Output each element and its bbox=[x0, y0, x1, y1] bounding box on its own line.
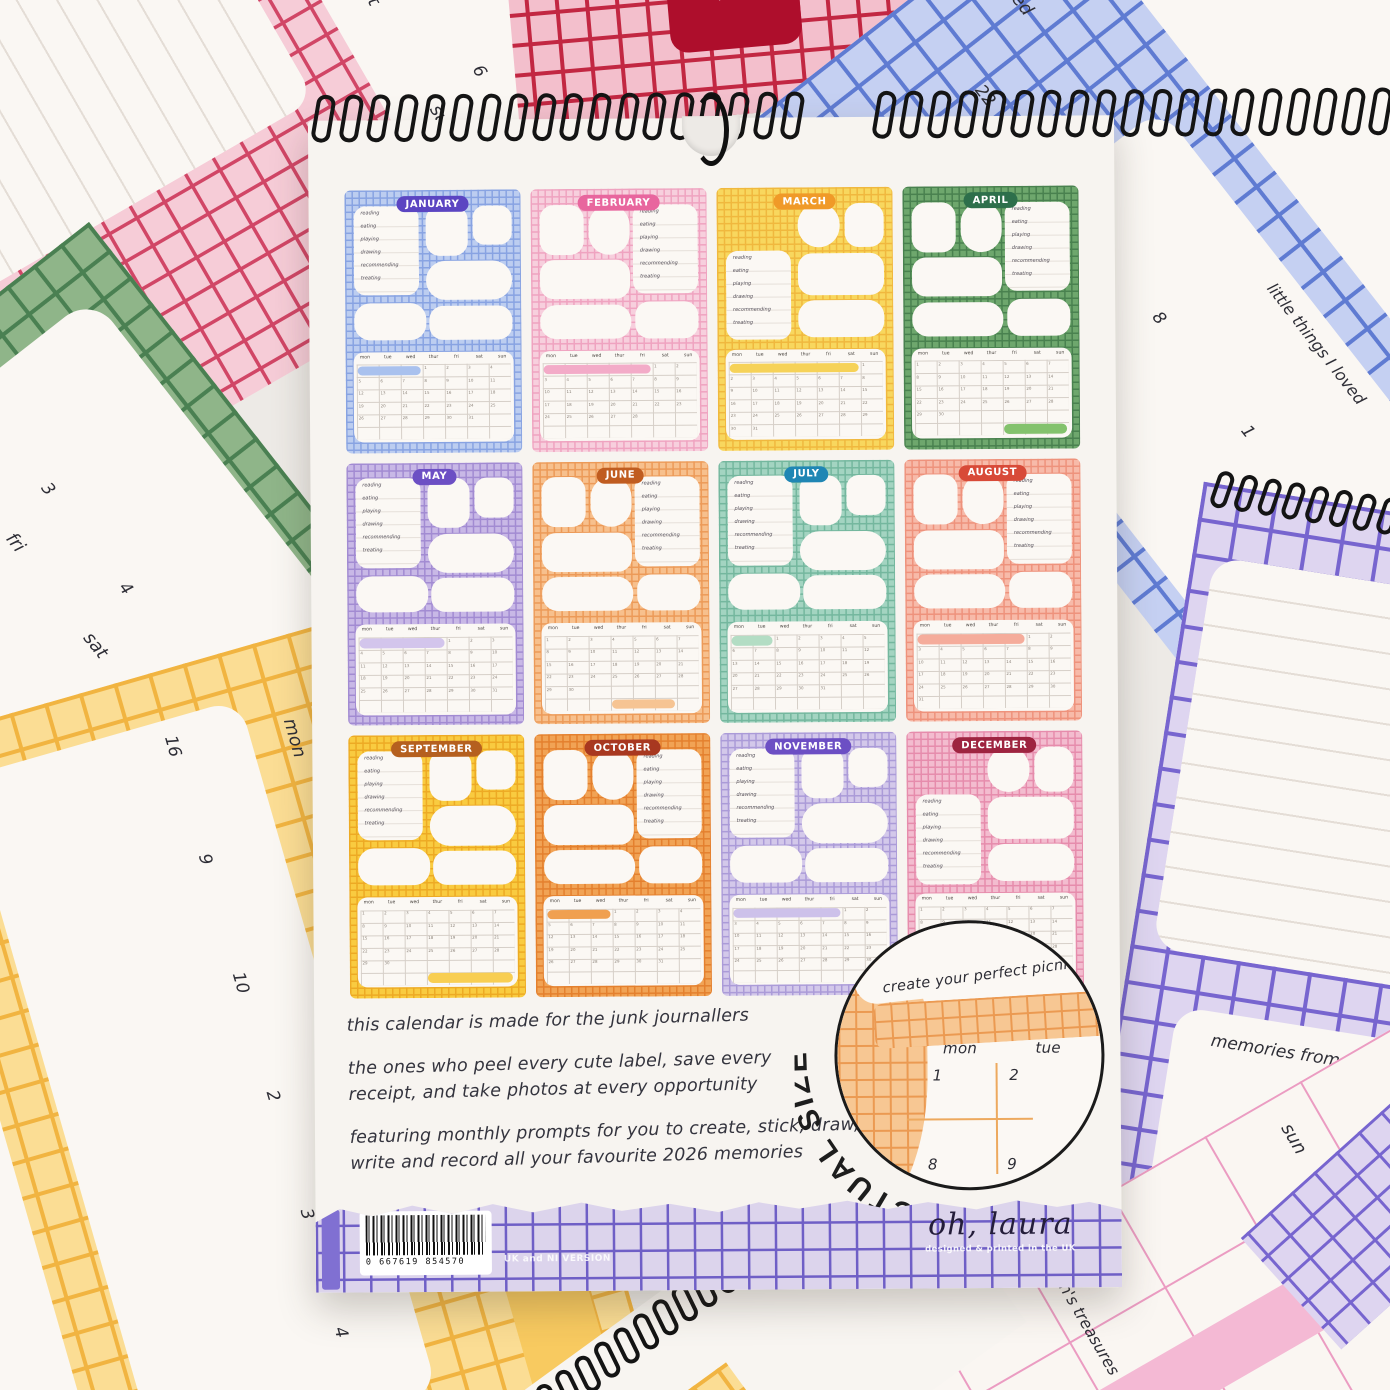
day-number: 19 bbox=[450, 935, 455, 940]
day-number: 26 bbox=[450, 948, 455, 953]
day-number: 21 bbox=[678, 661, 683, 666]
day-header: tue bbox=[936, 620, 959, 633]
magnified-num-8: 8 bbox=[928, 1156, 938, 1174]
day-number: 9 bbox=[384, 923, 387, 928]
day-number: 1 bbox=[844, 908, 847, 913]
tracker-list-blob: readingeatingplayingdrawingrecommendingt… bbox=[633, 204, 699, 294]
day-header: wed bbox=[771, 349, 794, 362]
photo-blob bbox=[1035, 747, 1074, 792]
day-number: 25 bbox=[680, 946, 685, 951]
day-number: 29 bbox=[547, 687, 552, 692]
day-number: 1 bbox=[546, 637, 549, 642]
photo-blob bbox=[1009, 571, 1073, 608]
tracker-word: playing bbox=[923, 825, 941, 831]
day-number: 23 bbox=[446, 402, 451, 407]
day-number: 23 bbox=[568, 674, 573, 679]
day-number: 23 bbox=[798, 673, 803, 678]
day-number: 1 bbox=[916, 362, 919, 367]
day-header: wed bbox=[587, 623, 610, 636]
tracker-word: playing bbox=[644, 779, 662, 785]
day-number: 19 bbox=[382, 676, 387, 681]
day-header: thur bbox=[794, 349, 817, 362]
binding-coil bbox=[420, 93, 447, 143]
day-number: 6 bbox=[404, 650, 407, 655]
tracker-word: playing bbox=[734, 506, 752, 512]
binding-coil bbox=[871, 90, 898, 140]
tracker-list-blob: readingeatingplayingdrawingrecommendingt… bbox=[1006, 474, 1072, 564]
day-number: 2 bbox=[1050, 633, 1053, 638]
tracker-list-blob: readingeatingplayingdrawingrecommendingt… bbox=[634, 477, 700, 567]
day-number: 21 bbox=[822, 945, 827, 950]
day-number: 27 bbox=[570, 959, 575, 964]
day-number: 2 bbox=[470, 637, 473, 642]
day-number: 24 bbox=[658, 946, 663, 951]
month-label: OCTOBER bbox=[584, 740, 660, 757]
tracker-word: recommending bbox=[1014, 530, 1052, 536]
day-number: 9 bbox=[446, 377, 449, 382]
day-header: sat bbox=[654, 350, 677, 363]
day-number: 5 bbox=[450, 910, 453, 915]
tracker-word: drawing bbox=[644, 792, 664, 798]
day-header: sun bbox=[494, 896, 517, 909]
day-number: 7 bbox=[1006, 646, 1009, 651]
photo-blob bbox=[805, 848, 888, 883]
day-number: 20 bbox=[656, 661, 661, 666]
day-header: fri bbox=[633, 623, 656, 636]
day-number: 1 bbox=[362, 911, 365, 916]
day-header: tue bbox=[378, 624, 401, 637]
day-number: 21 bbox=[1048, 386, 1053, 391]
day-number: 9 bbox=[568, 649, 571, 654]
binding-coil bbox=[503, 92, 530, 142]
day-number: 25 bbox=[490, 402, 495, 407]
footer-line-1: this calendar is made for the junk journ… bbox=[346, 999, 911, 1039]
day-number: 14 bbox=[822, 933, 827, 938]
tracker-word: recommending bbox=[1012, 257, 1050, 263]
day-header: wed bbox=[775, 894, 798, 907]
day-number: 14 bbox=[592, 934, 597, 939]
mini-calendar-day-headers: montuewedthurfrisatsun bbox=[729, 894, 889, 908]
day-number: 5 bbox=[864, 635, 867, 640]
day-number: 29 bbox=[776, 685, 781, 690]
day-number: 11 bbox=[360, 663, 365, 668]
strip-side-tab bbox=[322, 1210, 341, 1290]
day-header: thur bbox=[422, 351, 445, 364]
day-header: wed bbox=[401, 624, 424, 637]
day-number: 2 bbox=[446, 365, 449, 370]
day-number: 27 bbox=[1026, 398, 1031, 403]
day-number: 14 bbox=[678, 649, 683, 654]
day-number: 11 bbox=[982, 374, 987, 379]
month-label: AUGUST bbox=[959, 464, 1027, 480]
photo-blob bbox=[797, 203, 840, 248]
day-header: fri bbox=[819, 621, 842, 634]
day-number: 9 bbox=[636, 921, 639, 926]
day-number: 11 bbox=[612, 649, 617, 654]
day-number: 24 bbox=[820, 673, 825, 678]
day-number: 25 bbox=[775, 413, 780, 418]
day-number: 12 bbox=[382, 663, 387, 668]
day-number: 18 bbox=[842, 660, 847, 665]
day-header: sun bbox=[679, 622, 702, 635]
day-number: 6 bbox=[610, 376, 613, 381]
day-number: 13 bbox=[472, 923, 477, 928]
day-header: sat bbox=[1030, 893, 1053, 906]
day-number: 23 bbox=[939, 399, 944, 404]
day-number: 22 bbox=[654, 401, 659, 406]
day-header: sat bbox=[658, 895, 681, 908]
bg-day-label: wed bbox=[998, 0, 1037, 20]
photo-blob bbox=[475, 478, 514, 518]
day-number: 4 bbox=[756, 921, 759, 926]
day-number: 13 bbox=[800, 933, 805, 938]
day-number: 18 bbox=[940, 672, 945, 677]
day-number: 18 bbox=[680, 934, 685, 939]
day-number: 23 bbox=[1050, 671, 1055, 676]
photo-blob bbox=[800, 530, 887, 570]
day-number: 3 bbox=[468, 365, 471, 370]
tracker-word: treating bbox=[737, 818, 757, 824]
magnified-num-1: 1 bbox=[933, 1066, 943, 1084]
day-number: 28 bbox=[822, 958, 827, 963]
day-number: 1 bbox=[654, 364, 657, 369]
tracker-word: drawing bbox=[640, 247, 660, 253]
day-number: 17 bbox=[734, 946, 739, 951]
day-number: 17 bbox=[590, 662, 595, 667]
binding-coil bbox=[586, 92, 613, 142]
month-label: JULY bbox=[784, 466, 828, 482]
day-number: 22 bbox=[1028, 671, 1033, 676]
tracker-word: drawing bbox=[735, 519, 755, 525]
footer-text-block: this calendar is made for the junk journ… bbox=[346, 999, 916, 1195]
day-number: 6 bbox=[984, 646, 987, 651]
brand-logo: oh, laura designed & printed in the UK bbox=[925, 1206, 1076, 1254]
day-number: 3 bbox=[734, 921, 737, 926]
mini-calendar-day-headers: montuewedthurfrisatsun bbox=[355, 624, 515, 638]
tracker-word: playing bbox=[733, 281, 751, 287]
day-number: 7 bbox=[822, 920, 825, 925]
tracker-word: treating bbox=[644, 818, 664, 824]
mini-calendar: montuewedthurfrisatsun123456789101112131… bbox=[353, 351, 514, 443]
day-number: 21 bbox=[754, 673, 759, 678]
day-number: 7 bbox=[840, 375, 843, 380]
day-header: thur bbox=[984, 893, 1007, 906]
mini-calendar-day-headers: montuewedthurfrisatsun bbox=[357, 896, 517, 910]
day-number: 3 bbox=[492, 637, 495, 642]
day-number: 3 bbox=[544, 377, 547, 382]
day-header: fri bbox=[449, 897, 472, 910]
day-number: 12 bbox=[634, 649, 639, 654]
day-number: 30 bbox=[447, 415, 452, 420]
day-number: 6 bbox=[380, 378, 383, 383]
day-number: 20 bbox=[381, 403, 386, 408]
day-number: 11 bbox=[756, 933, 761, 938]
day-number: 5 bbox=[382, 651, 385, 656]
day-number: 24 bbox=[590, 674, 595, 679]
day-number: 15 bbox=[546, 662, 551, 667]
day-number: 29 bbox=[1028, 684, 1033, 689]
months-grid: JANUARYreadingeatingplayingdrawingrecomm… bbox=[344, 185, 1084, 998]
day-header: mon bbox=[541, 623, 564, 636]
day-header: tue bbox=[376, 352, 399, 365]
magnified-day-tue: tue bbox=[1035, 1039, 1061, 1057]
photo-blob bbox=[358, 848, 430, 885]
tracker-list-blob: readingeatingplayingdrawingrecommendingt… bbox=[357, 751, 423, 841]
day-number: 11 bbox=[428, 923, 433, 928]
day-number: 18 bbox=[360, 676, 365, 681]
day-number: 23 bbox=[731, 413, 736, 418]
day-number: 15 bbox=[916, 387, 921, 392]
day-number: 28 bbox=[1006, 684, 1011, 689]
day-number: 7 bbox=[1048, 361, 1051, 366]
day-number: 20 bbox=[1026, 386, 1031, 391]
binding-coil bbox=[558, 92, 585, 142]
day-number: 29 bbox=[614, 959, 619, 964]
mini-calendar-day-headers: montuewedthurfrisatsun bbox=[539, 350, 699, 364]
day-number: 15 bbox=[862, 387, 867, 392]
magnified-num-2: 2 bbox=[1009, 1065, 1019, 1083]
tracker-word: playing bbox=[736, 779, 754, 785]
day-number: 12 bbox=[778, 933, 783, 938]
mini-calendar: montuewedthurfrisatsun123456789101112131… bbox=[357, 896, 518, 988]
bg-day-label: sun bbox=[1277, 1120, 1311, 1158]
day-number: 8 bbox=[448, 650, 451, 655]
photo-blob bbox=[635, 301, 699, 338]
day-number: 12 bbox=[450, 923, 455, 928]
day-number: 4 bbox=[842, 635, 845, 640]
day-number: 12 bbox=[1004, 374, 1009, 379]
tracker-word: treating bbox=[642, 546, 662, 552]
day-header: mon bbox=[911, 348, 934, 361]
photo-blob bbox=[730, 846, 802, 883]
tracker-word: drawing bbox=[923, 838, 943, 844]
day-number: 6 bbox=[732, 648, 735, 653]
day-header: tue bbox=[748, 349, 771, 362]
day-number: 3 bbox=[658, 909, 661, 914]
photo-blob bbox=[845, 203, 884, 248]
day-number: 13 bbox=[404, 663, 409, 668]
photo-blob bbox=[914, 574, 1006, 609]
day-number: 24 bbox=[492, 675, 497, 680]
day-number: 31 bbox=[658, 959, 663, 964]
strip-grid: 0 667619 854570 UK and NI VERSION oh, la… bbox=[315, 1192, 1122, 1293]
mini-calendar: montuewedthurfrisatsun123456789101112131… bbox=[541, 622, 702, 714]
tracker-word: recommending bbox=[361, 262, 399, 268]
month-card-june: JUNEreadingeatingplayingdrawingrecommend… bbox=[532, 461, 710, 725]
day-header: wed bbox=[961, 893, 984, 906]
month-label: MARCH bbox=[773, 193, 835, 209]
photo-blob bbox=[801, 748, 844, 798]
month-card-january: JANUARYreadingeatingplayingdrawingrecomm… bbox=[344, 189, 522, 453]
tracker-word: playing bbox=[1014, 504, 1032, 510]
photo-blob bbox=[477, 750, 516, 790]
tracker-word: reading bbox=[736, 753, 755, 759]
day-number: 1 bbox=[1028, 634, 1031, 639]
tracker-word: drawing bbox=[736, 792, 756, 798]
day-number: 20 bbox=[472, 935, 477, 940]
mini-calendar-day-headers: montuewedthurfrisatsun bbox=[911, 347, 1071, 361]
day-number: 17 bbox=[492, 662, 497, 667]
day-number: 24 bbox=[961, 399, 966, 404]
day-number: 15 bbox=[654, 389, 659, 394]
mini-calendar: montuewedthurfrisatsun123456789101112131… bbox=[727, 621, 888, 713]
photo-blob bbox=[804, 575, 887, 610]
day-number: 5 bbox=[796, 375, 799, 380]
day-header: mon bbox=[355, 625, 378, 638]
day-number: 22 bbox=[862, 400, 867, 405]
tracker-word: reading bbox=[362, 483, 381, 489]
day-number: 9 bbox=[1050, 646, 1053, 651]
tracker-list-blob: readingeatingplayingdrawingrecommendingt… bbox=[353, 206, 419, 296]
day-number: 17 bbox=[960, 386, 965, 391]
binding-coil bbox=[448, 93, 475, 143]
day-number: 4 bbox=[940, 647, 943, 652]
day-number: 16 bbox=[568, 662, 573, 667]
day-number: 16 bbox=[636, 934, 641, 939]
day-header: sat bbox=[468, 351, 491, 364]
day-number: 18 bbox=[490, 390, 495, 395]
day-number: 24 bbox=[406, 948, 411, 953]
day-header: fri bbox=[631, 350, 654, 363]
month-label: JUNE bbox=[597, 467, 645, 483]
tracker-word: eating bbox=[360, 223, 376, 229]
day-number: 25 bbox=[361, 688, 366, 693]
day-header: sat bbox=[1028, 620, 1051, 633]
day-number: 2 bbox=[568, 637, 571, 642]
tracker-list-blob: readingeatingplayingdrawingrecommendingt… bbox=[1005, 201, 1071, 291]
day-header: sat bbox=[842, 621, 865, 634]
day-header: thur bbox=[982, 620, 1005, 633]
photo-blob bbox=[637, 574, 701, 611]
barcode-digits: 0 667619 854570 bbox=[366, 1257, 486, 1268]
day-number: 16 bbox=[676, 388, 681, 393]
day-header: wed bbox=[773, 622, 796, 635]
binding-coil bbox=[338, 93, 365, 143]
day-number: 11 bbox=[680, 921, 685, 926]
mini-calendar-day-headers: montuewedthurfrisatsun bbox=[541, 622, 701, 636]
day-number: 26 bbox=[383, 688, 388, 693]
day-number: 8 bbox=[654, 376, 657, 381]
photo-blob bbox=[962, 474, 1003, 524]
tracker-word: eating bbox=[362, 496, 378, 502]
day-number: 6 bbox=[1030, 906, 1033, 911]
day-number: 14 bbox=[426, 663, 431, 668]
month-label: FEBRUARY bbox=[578, 194, 660, 211]
month-card-march: MARCHreadingeatingplayingdrawingrecommen… bbox=[716, 187, 894, 451]
day-header: sat bbox=[840, 348, 863, 361]
day-number: 16 bbox=[731, 400, 736, 405]
day-number: 12 bbox=[359, 391, 364, 396]
day-number: 14 bbox=[402, 390, 407, 395]
photo-blob bbox=[987, 747, 1030, 792]
tracker-word: reading bbox=[922, 799, 941, 805]
day-number: 1 bbox=[920, 907, 923, 912]
photo-blob bbox=[433, 850, 516, 885]
day-header: sun bbox=[677, 350, 700, 363]
mini-calendar-day-headers: montuewedthurfrisatsun bbox=[915, 892, 1075, 906]
day-number: 30 bbox=[569, 687, 574, 692]
day-number: 30 bbox=[731, 425, 736, 430]
day-number: 16 bbox=[446, 390, 451, 395]
day-number: 5 bbox=[548, 922, 551, 927]
day-number: 17 bbox=[545, 402, 550, 407]
day-number: 25 bbox=[982, 399, 987, 404]
binding-coil bbox=[752, 90, 779, 140]
photo-blob bbox=[639, 846, 703, 883]
photo-blob bbox=[430, 305, 513, 340]
day-number: 30 bbox=[384, 961, 389, 966]
binding-coil bbox=[1232, 473, 1260, 514]
day-number: 31 bbox=[753, 425, 758, 430]
photo-blob bbox=[912, 302, 1004, 337]
tracker-word: recommending bbox=[733, 307, 771, 313]
tracker-word: treating bbox=[1012, 271, 1032, 277]
photo-blob bbox=[847, 475, 886, 515]
day-header: thur bbox=[426, 897, 449, 910]
day-header: mon bbox=[729, 895, 752, 908]
day-number: 22 bbox=[776, 673, 781, 678]
binding-coil bbox=[614, 91, 641, 141]
photo-blob bbox=[354, 303, 426, 340]
mini-calendar: montuewedthurfrisatsun123456789101112131… bbox=[911, 347, 1072, 439]
day-number: 26 bbox=[548, 960, 553, 965]
day-number: 1 bbox=[862, 362, 865, 367]
magnified-day-mon: mon bbox=[943, 1039, 977, 1057]
tracker-word: drawing bbox=[642, 520, 662, 526]
tracker-word: reading bbox=[642, 481, 661, 487]
day-number: 29 bbox=[862, 412, 867, 417]
day-number: 22 bbox=[424, 403, 429, 408]
day-header: tue bbox=[752, 894, 775, 907]
day-number: 15 bbox=[1028, 659, 1033, 664]
day-number: 2 bbox=[942, 907, 945, 912]
day-number: 23 bbox=[676, 401, 681, 406]
photo-blob bbox=[356, 576, 428, 613]
day-number: 5 bbox=[1008, 906, 1011, 911]
day-number: 12 bbox=[796, 388, 801, 393]
day-number: 17 bbox=[820, 660, 825, 665]
binding-coil bbox=[531, 92, 558, 142]
day-number: 1 bbox=[448, 638, 451, 643]
day-number: 20 bbox=[610, 401, 615, 406]
day-header: tue bbox=[562, 350, 585, 363]
day-number: 6 bbox=[656, 636, 659, 641]
day-number: 19 bbox=[778, 945, 783, 950]
day-number: 1 bbox=[776, 635, 779, 640]
binding-coil bbox=[1327, 488, 1355, 529]
day-header: fri bbox=[1007, 893, 1030, 906]
binding-coil bbox=[898, 89, 925, 139]
tracker-word: recommending bbox=[923, 851, 961, 857]
tracker-list-blob: readingeatingplayingdrawingrecommendingt… bbox=[915, 795, 981, 885]
day-number: 13 bbox=[656, 649, 661, 654]
day-number: 31 bbox=[820, 685, 825, 690]
day-number: 24 bbox=[545, 414, 550, 419]
day-number: 18 bbox=[775, 400, 780, 405]
tracker-word: eating bbox=[736, 766, 752, 772]
day-number: 24 bbox=[753, 413, 758, 418]
day-number: 14 bbox=[494, 922, 499, 927]
photo-blob bbox=[430, 806, 517, 846]
day-number: 15 bbox=[614, 934, 619, 939]
day-number: 17 bbox=[468, 390, 473, 395]
photo-blob bbox=[428, 533, 515, 573]
day-number: 3 bbox=[964, 907, 967, 912]
day-number: 8 bbox=[614, 922, 617, 927]
day-header: mon bbox=[913, 621, 936, 634]
day-number: 19 bbox=[634, 661, 639, 666]
day-number: 27 bbox=[733, 686, 738, 691]
